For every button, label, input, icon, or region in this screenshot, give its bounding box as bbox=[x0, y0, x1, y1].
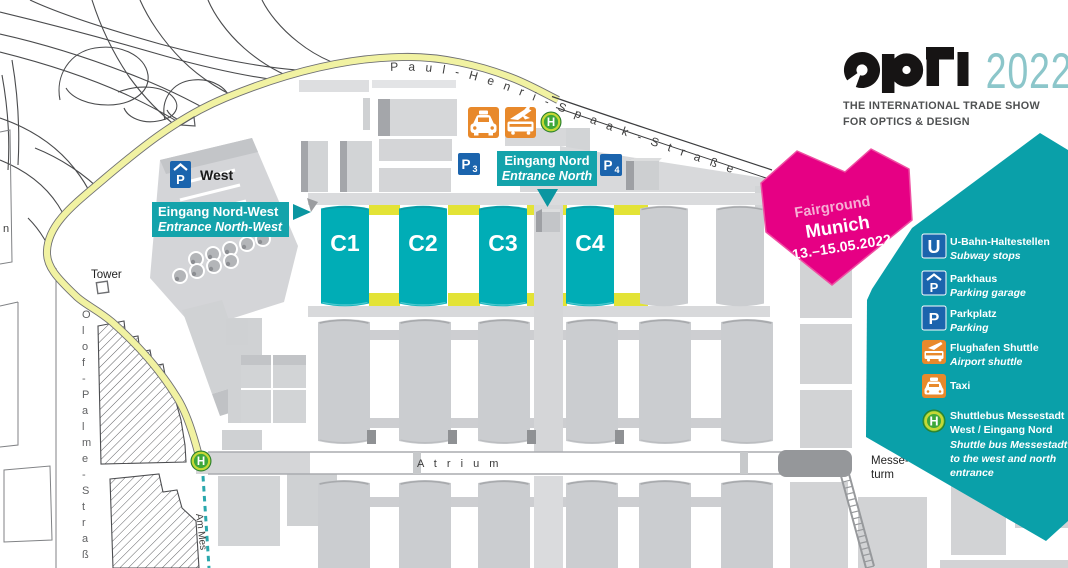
svg-text:Eingang Nord: Eingang Nord bbox=[504, 153, 589, 168]
svg-text:A t r i u m: A t r i u m bbox=[417, 458, 502, 470]
svg-text:3: 3 bbox=[473, 164, 478, 174]
svg-text:P: P bbox=[176, 172, 185, 187]
svg-text:entrance: entrance bbox=[950, 467, 994, 479]
svg-text:Shuttle bus Messestadt: Shuttle bus Messestadt bbox=[950, 439, 1068, 451]
svg-text:U-Bahn-Haltestellen: U-Bahn-Haltestellen bbox=[950, 236, 1050, 248]
svg-text:Shuttlebus Messestadt: Shuttlebus Messestadt bbox=[950, 410, 1065, 422]
svg-text:Parking: Parking bbox=[950, 322, 989, 334]
svg-text:n: n bbox=[3, 223, 9, 235]
svg-text:C1: C1 bbox=[330, 230, 360, 256]
svg-text:Flughafen Shuttle: Flughafen Shuttle bbox=[950, 342, 1039, 354]
svg-text:Airport shuttle: Airport shuttle bbox=[949, 356, 1022, 368]
svg-text:Taxi: Taxi bbox=[950, 380, 970, 392]
svg-text:Parking garage: Parking garage bbox=[950, 287, 1026, 299]
svg-text:P: P bbox=[603, 158, 612, 173]
svg-text:U: U bbox=[928, 237, 941, 257]
svg-text:Entrance North: Entrance North bbox=[502, 169, 593, 183]
svg-text:West: West bbox=[200, 167, 234, 183]
svg-text:Parkplatz: Parkplatz bbox=[950, 308, 997, 320]
svg-text:Tower: Tower bbox=[91, 269, 122, 281]
svg-text:to the west and north: to the west and north bbox=[950, 453, 1056, 465]
svg-text:4: 4 bbox=[615, 165, 620, 175]
svg-text:Subway stops: Subway stops bbox=[950, 250, 1021, 262]
svg-text:C3: C3 bbox=[488, 230, 517, 256]
svg-text:West / Eingang Nord: West / Eingang Nord bbox=[950, 424, 1052, 436]
svg-text:2022: 2022 bbox=[986, 44, 1068, 99]
svg-text:P: P bbox=[930, 280, 939, 295]
svg-text:H: H bbox=[929, 415, 938, 429]
svg-text:P: P bbox=[461, 157, 470, 172]
svg-text:Parkhaus: Parkhaus bbox=[950, 273, 997, 285]
svg-text:C4: C4 bbox=[575, 230, 605, 256]
svg-text:FOR OPTICS & DESIGN: FOR OPTICS & DESIGN bbox=[843, 116, 970, 128]
svg-text:P: P bbox=[929, 311, 940, 328]
svg-text:Eingang Nord-West: Eingang Nord-West bbox=[158, 204, 279, 219]
svg-text:C2: C2 bbox=[408, 230, 437, 256]
svg-text:turm: turm bbox=[871, 469, 894, 481]
svg-text:THE INTERNATIONAL TRADE SHOW: THE INTERNATIONAL TRADE SHOW bbox=[843, 100, 1040, 112]
svg-text:Entrance North-West: Entrance North-West bbox=[158, 220, 283, 234]
